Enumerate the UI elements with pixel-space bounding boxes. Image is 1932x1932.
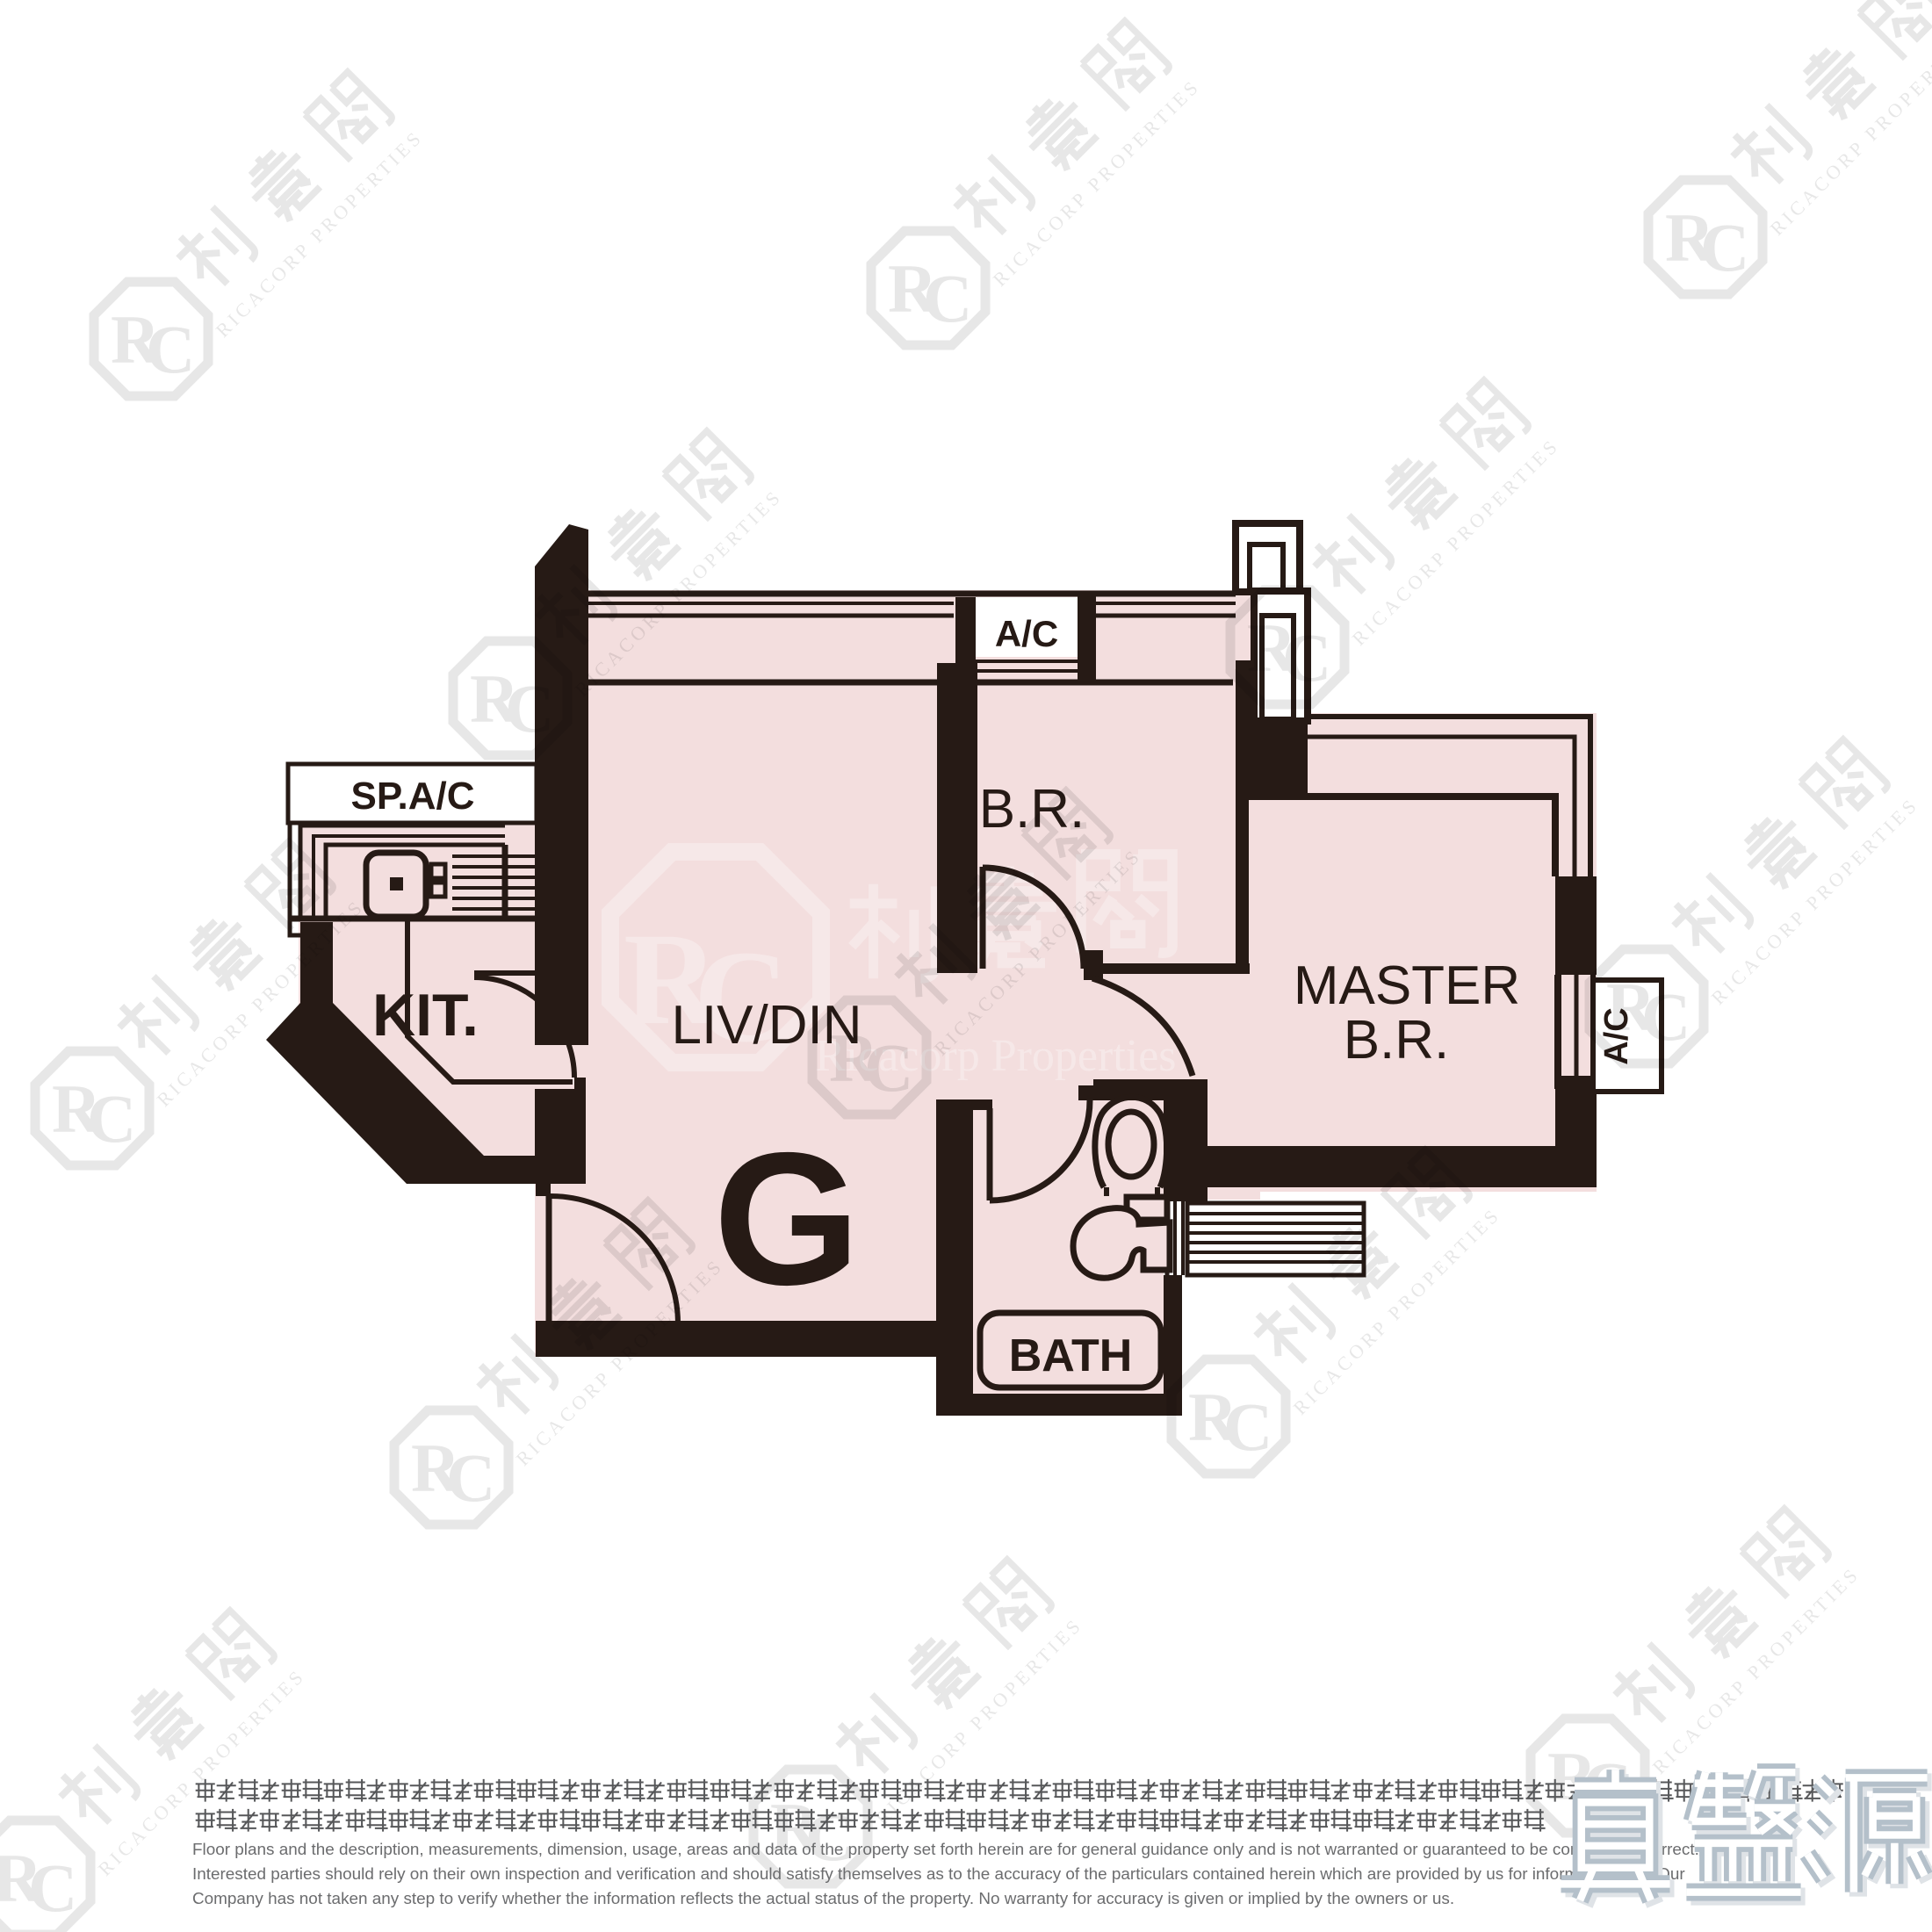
svg-text:MASTER: MASTER [1294, 955, 1520, 1016]
svg-text:A/C: A/C [995, 613, 1058, 654]
svg-text:Floor plans and the descriptio: Floor plans and the description, measure… [192, 1841, 1699, 1859]
svg-text:KIT.: KIT. [372, 982, 479, 1049]
svg-text:BATH: BATH [1009, 1330, 1133, 1381]
svg-text:B.R.: B.R. [1344, 1010, 1450, 1071]
svg-text:Company has not taken any step: Company has not taken any step to verify… [192, 1890, 1454, 1908]
svg-text:B.R.: B.R. [979, 779, 1085, 840]
svg-text:SP.A/C: SP.A/C [350, 775, 474, 818]
svg-text:Interested parties should rely: Interested parties should rely on their … [192, 1865, 1685, 1884]
svg-text:G: G [713, 1113, 860, 1324]
